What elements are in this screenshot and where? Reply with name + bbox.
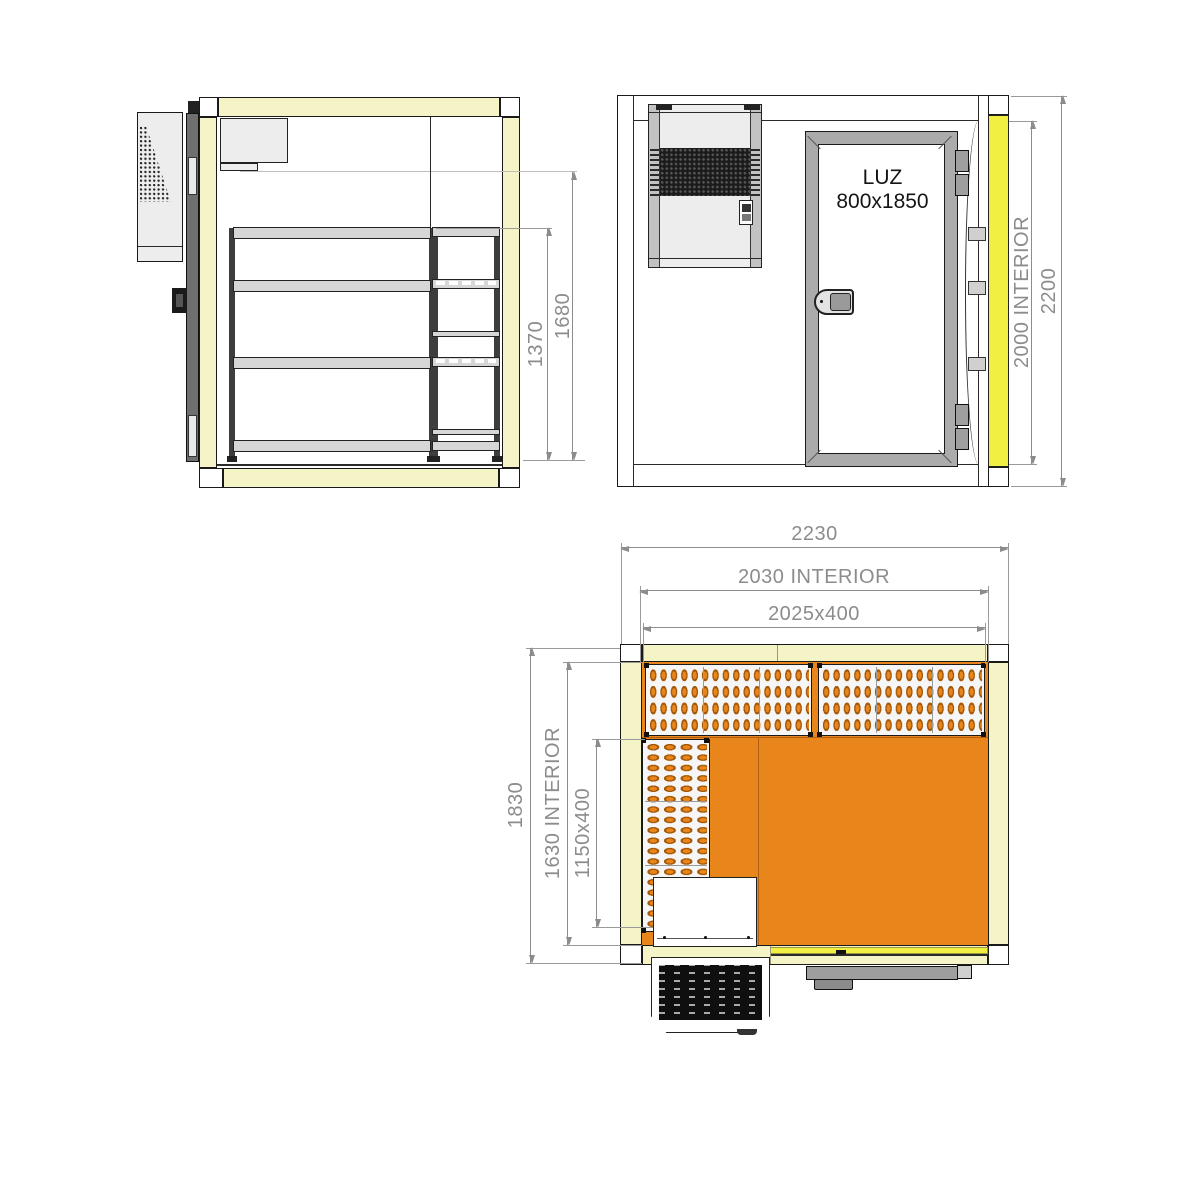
dim-line-1630 — [567, 662, 568, 945]
plan-corner-br — [988, 945, 1009, 965]
plan-left-wall — [620, 662, 642, 945]
door-hinge — [955, 174, 969, 196]
door-hinge — [955, 428, 969, 450]
ext-line — [1008, 543, 1009, 644]
door-hinge — [955, 150, 969, 172]
end-shelf-rail — [432, 441, 500, 451]
dim-line-1830 — [530, 648, 531, 963]
dim-label-1680: 1680 — [553, 266, 573, 366]
front-corner-top — [988, 95, 1009, 115]
end-shelf-rail — [432, 429, 500, 435]
dim-label-1150x400: 1150x400 — [573, 763, 593, 903]
plan-shelf-slots — [648, 667, 809, 733]
shelf-foot — [430, 456, 440, 462]
shelf-level-2 — [233, 280, 431, 292]
shelf-foot — [492, 456, 502, 462]
side-right-wall — [502, 117, 520, 468]
dim-line-2230 — [621, 547, 1008, 548]
dim-line-2200 — [1061, 96, 1062, 486]
ext-line — [1011, 486, 1067, 487]
wall-bracket — [968, 281, 986, 295]
front-unit-latch-dark — [742, 204, 751, 212]
plan-right-wall — [988, 662, 1009, 945]
ext-line — [526, 963, 642, 964]
ext-line — [592, 927, 653, 928]
dim-line-2030 — [640, 590, 988, 591]
shelf-post — [229, 228, 235, 458]
front-unit-tab — [656, 105, 672, 110]
shelf-foot — [227, 456, 237, 462]
ext-line — [563, 662, 642, 663]
plan-back-shelf-right — [818, 664, 985, 736]
front-unit-cap-line — [649, 112, 761, 113]
dim-label-2030-interior: 2030 INTERIOR — [640, 567, 988, 587]
plan-door-threshold — [770, 947, 988, 954]
side-floor-panel — [223, 468, 499, 488]
side-left-wall — [199, 117, 217, 468]
front-unit-tab — [744, 105, 760, 110]
front-unit-rail-hatch — [650, 148, 659, 196]
ext-line — [988, 586, 989, 662]
front-corner-bottom — [988, 467, 1009, 487]
dim-label-1830: 1830 — [506, 755, 526, 855]
plan-condenser-tab — [737, 1029, 757, 1035]
plan-shelf-slots — [821, 667, 982, 733]
dim-line-1370 — [547, 228, 548, 460]
door-label-line1: LUZ — [825, 166, 940, 190]
plan-corner-bl — [620, 945, 642, 965]
front-unit-bottom-line — [649, 258, 761, 259]
plan-top-wall-seam — [777, 645, 778, 661]
plan-door-hinge — [957, 965, 972, 979]
ext-line — [1011, 96, 1067, 97]
door-handle-grip — [830, 293, 851, 311]
door-handle-pin — [820, 300, 823, 303]
front-unit-rail-hatch — [751, 148, 760, 196]
side-corner-bl — [199, 468, 223, 488]
door-label-line2: 800x1850 — [825, 190, 940, 214]
end-shelf-post — [494, 228, 500, 458]
side-interior-floor-line — [217, 464, 502, 466]
front-unit-latch-gray — [742, 214, 751, 221]
end-shelf-rail — [432, 331, 500, 337]
plan-top-wall — [642, 644, 988, 662]
front-side-panel — [988, 115, 1009, 467]
dim-label-2000-interior: 2000 INTERIOR — [1012, 192, 1032, 392]
front-unit-grille — [660, 148, 750, 196]
side-top-wall — [218, 97, 500, 117]
front-left-inner-line — [633, 95, 634, 487]
ext-line — [563, 945, 642, 946]
shelf-level-1 — [233, 227, 431, 239]
cold-room-technical-drawing: 1370 1680 LUZ 800x185 — [0, 0, 1200, 1200]
plan-corner-tl — [620, 644, 642, 662]
ext-line — [640, 586, 641, 662]
door-hinge — [955, 404, 969, 426]
side-bar-detail-bottom — [188, 415, 197, 457]
wall-bracket — [968, 357, 986, 371]
plan-evaporator-screw — [704, 936, 707, 939]
side-corner-tl — [199, 97, 218, 117]
side-extension-line-1680 — [240, 171, 577, 172]
shelf-level-3 — [233, 357, 431, 369]
ext-line — [436, 228, 552, 229]
plan-sill-tick — [836, 950, 846, 954]
end-shelf-post — [432, 228, 438, 458]
side-corner-tr — [500, 97, 520, 117]
side-latch-inner — [176, 294, 183, 307]
dim-label-2200: 2200 — [1039, 241, 1059, 341]
dim-label-1630-interior: 1630 INTERIOR — [543, 703, 563, 903]
plan-back-shelf-left — [645, 664, 812, 736]
plan-evaporator-screw — [663, 936, 666, 939]
side-door-jamb-line — [430, 117, 431, 228]
side-corner-br — [499, 468, 520, 488]
plan-corner-tr — [988, 644, 1009, 662]
ext-line — [621, 543, 622, 644]
side-evaporator — [220, 118, 288, 163]
side-bar-detail-top — [188, 157, 197, 195]
ext-line — [526, 648, 620, 649]
dim-line-1150x400 — [596, 739, 597, 927]
plan-bottom-wall-seam — [770, 946, 771, 964]
dim-label-2025x400: 2025x400 — [643, 604, 985, 624]
dim-line-2025x400 — [643, 627, 985, 628]
end-shelf-slats — [436, 281, 496, 285]
plan-floor-seam-h — [642, 737, 988, 738]
plan-condenser-coil — [659, 965, 762, 1020]
dim-label-1370: 1370 — [526, 294, 546, 394]
end-shelf-slats — [436, 359, 496, 363]
plan-evaporator-screw — [747, 936, 750, 939]
side-evaporator-lip — [220, 163, 258, 171]
plan-door-handle — [814, 979, 853, 990]
side-monoblock-base-line — [138, 246, 182, 247]
wall-bracket — [968, 227, 986, 241]
plan-door-leaf — [806, 966, 958, 980]
plan-floor-seam-v — [758, 737, 759, 945]
plan-door-sill-line — [770, 954, 988, 956]
shelf-level-4 — [233, 440, 431, 452]
dim-label-2230: 2230 — [621, 524, 1008, 544]
